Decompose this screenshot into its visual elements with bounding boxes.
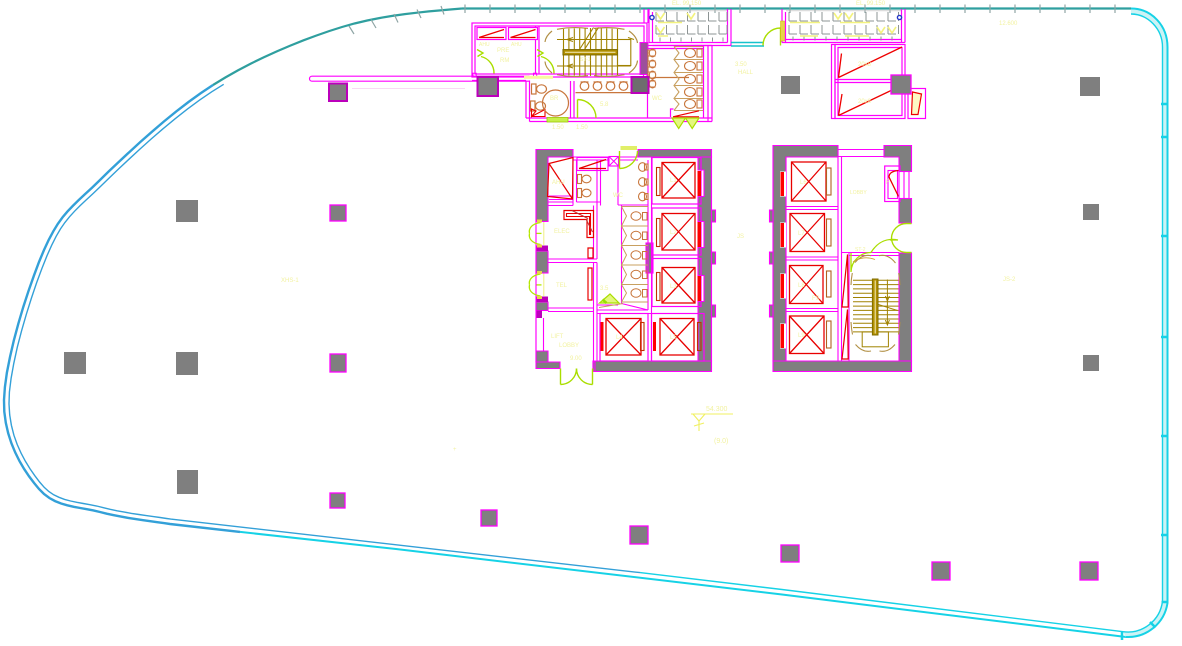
svg-text:L1: L1 — [670, 178, 677, 184]
svg-text:L5: L5 — [670, 335, 677, 341]
svg-text:ST-2: ST-2 — [855, 247, 866, 253]
svg-text:L8: L8 — [798, 283, 805, 289]
svg-text:+: + — [453, 447, 457, 453]
svg-text:1.50: 1.50 — [552, 125, 564, 131]
svg-text:WC: WC — [613, 193, 624, 199]
svg-text:EL. 99.150: EL. 99.150 — [672, 1, 702, 7]
svg-text:JS: JS — [737, 234, 744, 240]
svg-text:LOBBY: LOBBY — [559, 343, 579, 349]
svg-text:EL. 99.150: EL. 99.150 — [856, 1, 886, 7]
svg-text:AHU: AHU — [511, 42, 522, 48]
svg-text:L6: L6 — [800, 180, 807, 186]
svg-text:TEL: TEL — [556, 283, 568, 289]
svg-text:54.300: 54.300 — [706, 406, 728, 413]
svg-text:JS-2: JS-2 — [1003, 277, 1016, 283]
svg-text:L2: L2 — [670, 230, 677, 236]
svg-text:LIFT: LIFT — [551, 334, 564, 340]
svg-text:FS: FS — [812, 296, 820, 302]
svg-text:LOBBY: LOBBY — [850, 190, 867, 196]
svg-text:HALL: HALL — [738, 70, 754, 76]
svg-text:AHU: AHU — [479, 42, 490, 48]
svg-text:WC: WC — [652, 96, 663, 102]
svg-text:PRE: PRE — [497, 48, 509, 54]
svg-text:RM: RM — [500, 58, 509, 64]
svg-text:XHS-1: XHS-1 — [281, 278, 299, 284]
svg-text:3.50: 3.50 — [735, 62, 747, 68]
svg-text:L7: L7 — [798, 231, 805, 237]
svg-text:20x8: 20x8 — [858, 62, 872, 68]
svg-text:3.5: 3.5 — [600, 286, 609, 292]
svg-text:BR: BR — [550, 96, 559, 102]
svg-text:9.00: 9.00 — [570, 356, 582, 362]
svg-text:ELEC: ELEC — [554, 229, 570, 235]
svg-text:5.8: 5.8 — [600, 102, 609, 108]
svg-text:(9.0): (9.0) — [714, 438, 728, 445]
svg-text:12.600: 12.600 — [999, 21, 1018, 27]
svg-text:20x8: 20x8 — [858, 99, 872, 105]
svg-text:AHU: AHU — [552, 180, 565, 186]
svg-text:ST-1: ST-1 — [580, 57, 591, 63]
svg-text:L4: L4 — [616, 335, 623, 341]
svg-text:1.50: 1.50 — [576, 125, 588, 131]
svg-text:L9: L9 — [798, 333, 805, 339]
svg-text:F: F — [886, 180, 890, 186]
svg-text:L3: L3 — [670, 284, 677, 290]
